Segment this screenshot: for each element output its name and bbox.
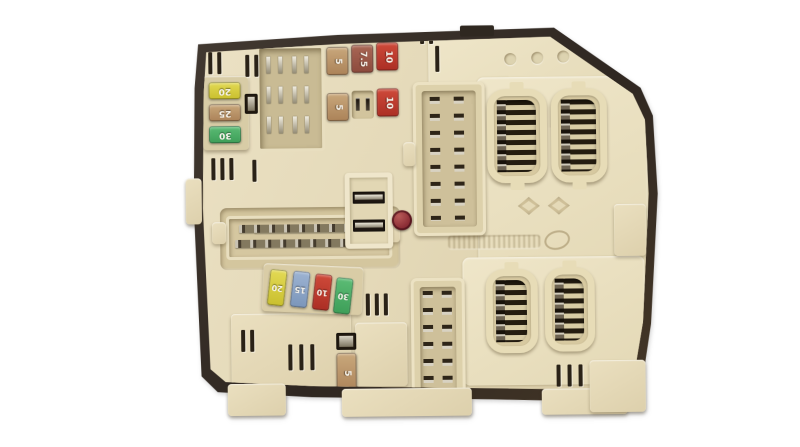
vent-slit <box>217 52 221 74</box>
vent-slit <box>241 330 245 352</box>
vent-slit <box>245 55 249 77</box>
fuse-5a-upper1: 5 <box>326 47 348 75</box>
fuse-5a-upper2-label: 5 <box>333 104 342 110</box>
blade-terminal <box>353 191 385 203</box>
empty-fuse-slot <box>352 91 374 119</box>
pin-column <box>555 279 565 341</box>
fuse-5a-upper1-label: 5 <box>333 58 342 64</box>
pin-column <box>561 99 571 171</box>
fuse-10a-upper2-label: 10 <box>383 96 392 109</box>
pin-column <box>442 291 453 385</box>
connector-tab <box>504 262 518 270</box>
fuse-10a-upper1: 10 <box>376 42 398 70</box>
oval-connector-socket <box>487 89 548 184</box>
blade-terminal <box>353 219 385 231</box>
vent-slit <box>208 52 212 74</box>
oval-connector-socket <box>485 269 538 354</box>
fuse-7p5a-label: 7.5 <box>358 51 367 67</box>
vent-slit <box>375 293 379 315</box>
pin-column <box>454 97 465 221</box>
fuse-10a-upper2: 10 <box>377 88 399 116</box>
photo-canvas: 20 25 30 5 7.5 10 5 <box>0 0 800 447</box>
right-edge-tab <box>614 204 647 256</box>
oval-connector-socket <box>551 88 608 183</box>
vent-slit <box>220 158 224 180</box>
fuse-slot <box>336 333 356 350</box>
fuse-10a-upper1-label: 10 <box>383 50 392 63</box>
vent-slit <box>211 158 215 180</box>
vent-slit <box>310 344 314 370</box>
fuse-15a-mid-label: 15 <box>294 285 306 294</box>
red-inspection-seal <box>392 210 412 230</box>
fuse-30a-mid-label: 30 <box>337 291 349 300</box>
blade-relay-socket <box>344 172 393 248</box>
connector-latch-tab <box>403 142 415 166</box>
oval-connector-socket <box>544 267 595 352</box>
molded-symbol <box>504 53 516 65</box>
pin-column <box>496 280 506 342</box>
fuse-30a: 30 <box>209 126 241 143</box>
terminal-pin-pair <box>266 116 284 133</box>
vent-slit <box>578 364 582 386</box>
terminal-pin-pair <box>266 86 284 103</box>
left-edge-tab <box>186 178 202 224</box>
pin-column <box>497 100 507 172</box>
bottom-right-corner-block <box>589 360 646 413</box>
connector-tab <box>511 182 525 190</box>
fuse-25a-label: 25 <box>219 108 232 117</box>
vent-slit <box>366 294 370 316</box>
vent-slit <box>254 55 258 77</box>
connector-tab <box>510 82 524 90</box>
molded-symbol <box>531 52 543 64</box>
connector-tab <box>562 260 576 268</box>
connector-wing <box>212 222 226 244</box>
frame-top-tab <box>460 25 494 36</box>
vent-slit <box>567 364 571 386</box>
fuse-5a-upper2: 5 <box>327 93 349 121</box>
center-tall-connector <box>413 81 487 236</box>
vent-slit <box>252 160 256 182</box>
vent-slit <box>556 365 560 387</box>
embossed-part-code <box>448 235 540 249</box>
lower-vertical-connector <box>411 278 466 401</box>
bottom-mount-block <box>342 388 472 417</box>
vent-slit <box>299 344 303 370</box>
vent-slit <box>435 46 439 72</box>
vent-slit <box>229 158 233 180</box>
fuse-30a-label: 30 <box>219 130 232 139</box>
small-terminal-slot <box>245 94 258 114</box>
fuse-10a-mid-label: 10 <box>316 287 328 296</box>
fuse-5a-lower-label: 5 <box>342 370 351 376</box>
terminal-pin-pair <box>265 56 283 73</box>
fuse-7p5a: 7.5 <box>351 45 373 73</box>
terminal-pin-pair <box>292 116 310 133</box>
fuse-20a-mid-label: 20 <box>271 283 283 292</box>
bottom-mount-block <box>228 383 286 416</box>
vent-slit <box>384 293 388 315</box>
terminal-pin-pair <box>292 86 310 103</box>
fuse-20a-label: 20 <box>218 86 231 95</box>
relay-socket-recess <box>256 45 325 152</box>
fuse-20a: 20 <box>209 82 241 99</box>
fuse-25a: 25 <box>209 104 241 121</box>
connector-tab <box>572 81 586 89</box>
vent-slit <box>250 330 254 352</box>
connector-tab <box>573 181 587 189</box>
fuse-box: 20 25 30 5 7.5 10 5 <box>188 24 664 425</box>
bottom-center-block <box>355 322 408 387</box>
molded-symbol <box>557 50 569 62</box>
pin-column <box>423 291 434 385</box>
terminal-pin-pair <box>291 56 309 73</box>
pin-column <box>430 97 441 221</box>
vent-slit <box>288 344 292 370</box>
